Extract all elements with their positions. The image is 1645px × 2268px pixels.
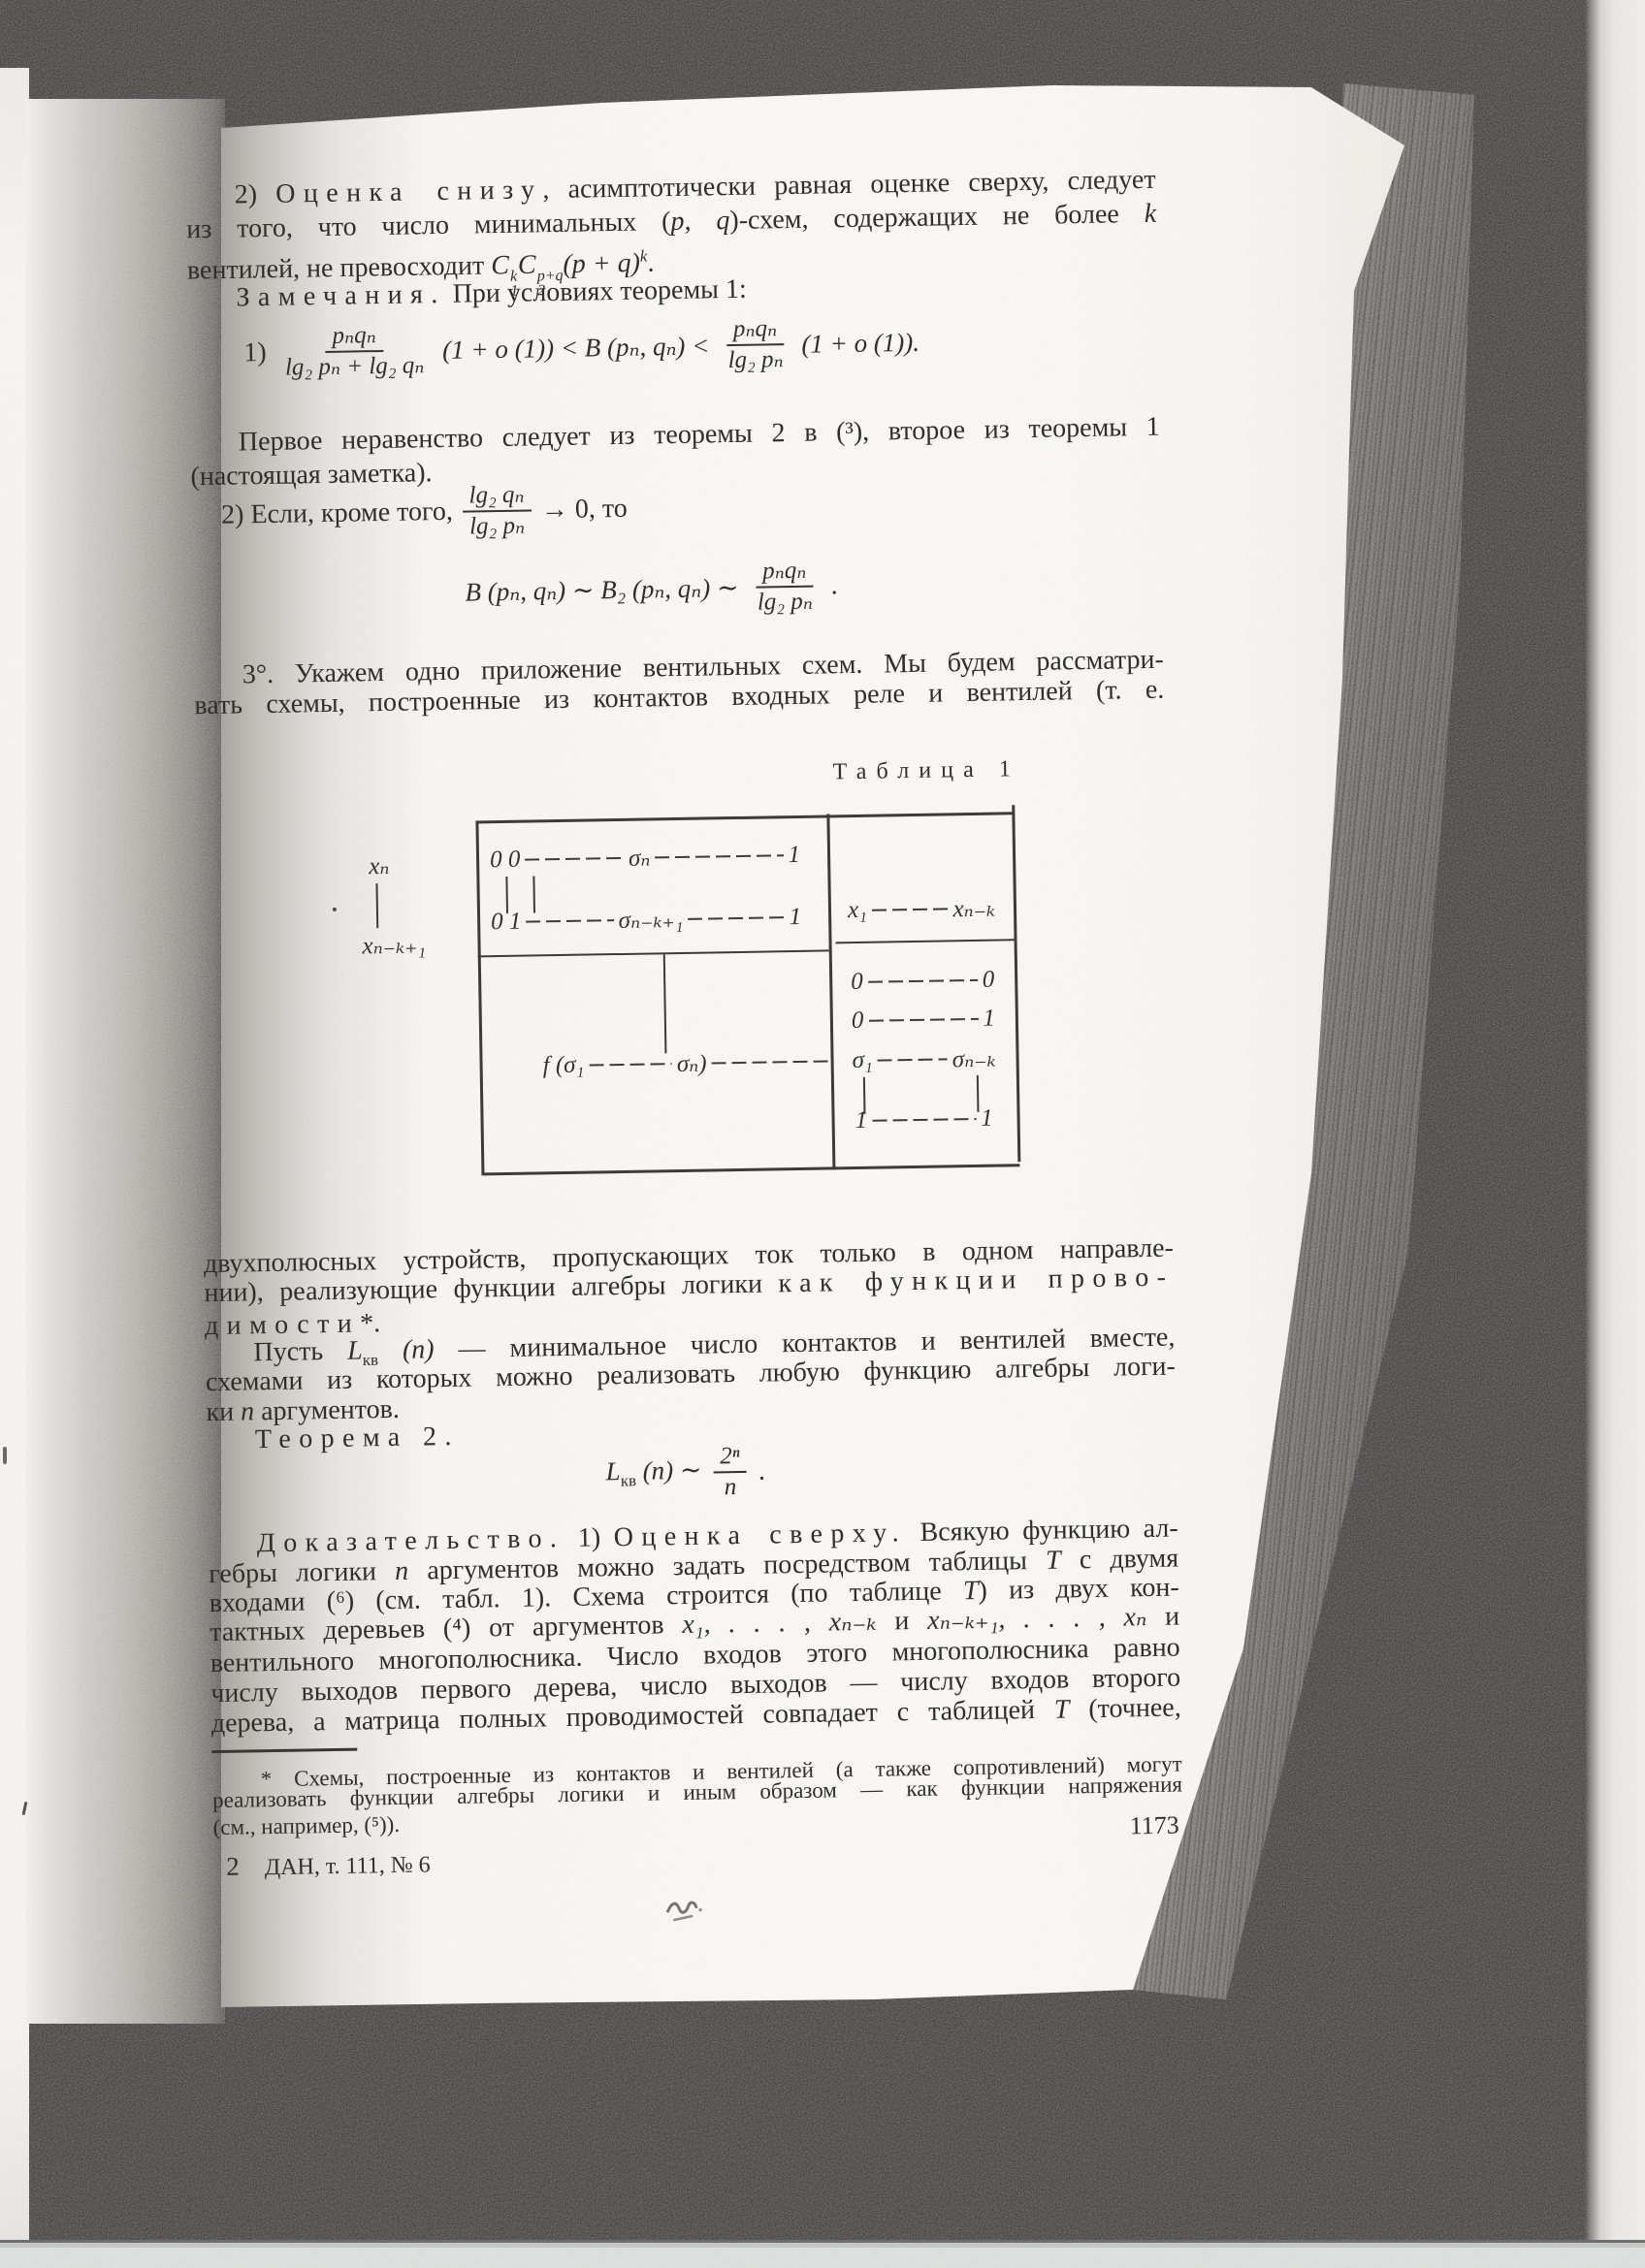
table-row: 11: [855, 1105, 992, 1134]
fraction: pₙqₙlg₂ pₙ: [721, 315, 790, 374]
table-function-row: f (σ₁σₙ): [542, 1046, 827, 1080]
table-caption: Таблица 1: [832, 756, 1020, 785]
table-divider-vertical: [826, 814, 835, 1168]
formula-text: B (pₙ, qₙ) ∼ B₂ (pₙ, qₙ) ∼: [465, 572, 739, 607]
table-row: 00: [851, 967, 994, 996]
page-content: 2) Оценка снизу, асимптотически равная о…: [0, 0, 1645, 2268]
display-equation-3: Lкв (n) ∼ 2ⁿn .: [605, 1443, 765, 1504]
table-border-top: [475, 812, 1013, 823]
formula-var: C: [518, 250, 536, 280]
text-line-with-fraction: 2) Если, кроме того, lg₂ qₙlg₂ pₙ → 0, т…: [221, 480, 629, 545]
page-number: 1173: [1129, 1811, 1179, 1841]
table-row: 01: [852, 1006, 995, 1035]
table-border-bottom: [481, 1164, 1019, 1175]
table-header-rule-left: [478, 949, 829, 957]
formula-var: C: [491, 250, 509, 280]
connector-bar-vertical: [663, 954, 667, 1053]
table-header-right: x₁xₙ₋ₖ: [848, 894, 995, 926]
table-header-rule-right: [836, 939, 1015, 943]
formula-text: (1 + o (1)) < B (pₙ, qₙ) <: [442, 331, 710, 366]
fraction: lg₂ qₙlg₂ pₙ: [462, 481, 532, 540]
table-1: xₙ xₙ₋ₖ₊₁ 0 0σₙ1 0 1σₙ₋ₖ₊₁1 x₁xₙ₋ₖ f (σ₁…: [0, 0, 1629, 12]
formula-var: L: [347, 1335, 363, 1365]
table-side-label-top: xₙ: [369, 851, 390, 880]
journal-signature: 2ДАН, т. 111, № 6: [226, 1848, 431, 1881]
table-border-right: [1012, 805, 1020, 1162]
table-row: σ₁σₙ₋ₖ: [852, 1044, 995, 1075]
formula-text: (1 + o (1)).: [801, 327, 919, 359]
fraction: pₙqₙlg₂ pₙ + lg₂ qₙ: [277, 321, 431, 382]
table-side-label-bottom: xₙ₋ₖ₊₁: [362, 930, 426, 960]
formula-text: Lкв (n) ∼: [605, 1455, 702, 1491]
table-border-left: [475, 820, 484, 1174]
fraction: pₙqₙlg₂ pₙ: [750, 558, 820, 617]
text-segment: → 0, то: [541, 494, 628, 526]
margin-mark: [3, 1447, 7, 1464]
display-equation-2: B (pₙ, qₙ) ∼ B₂ (pₙ, qₙ) ∼ pₙqₙlg₂ pₙ .: [465, 557, 838, 621]
side-label-bar: [375, 883, 378, 928]
fraction: 2ⁿn: [713, 1443, 747, 1502]
equation-number: 1): [243, 337, 267, 368]
formula-var: (p + q): [563, 248, 640, 279]
display-equation-1: 1) pₙqₙlg₂ pₙ + lg₂ qₙ (1 + o (1)) < B (…: [243, 313, 920, 383]
text-segment: 2) Если, кроме того,: [221, 496, 453, 531]
table-header-row-1: 0 0σₙ1: [490, 841, 800, 875]
ink-smudge: [663, 1897, 709, 1931]
scanned-page: 2) Оценка снизу, асимптотически равная о…: [0, 0, 1645, 2268]
table-header-row-2: 0 1σₙ₋ₖ₊₁1: [491, 903, 801, 937]
footnote-rule: [211, 1748, 357, 1753]
stray-dot: [333, 908, 337, 911]
